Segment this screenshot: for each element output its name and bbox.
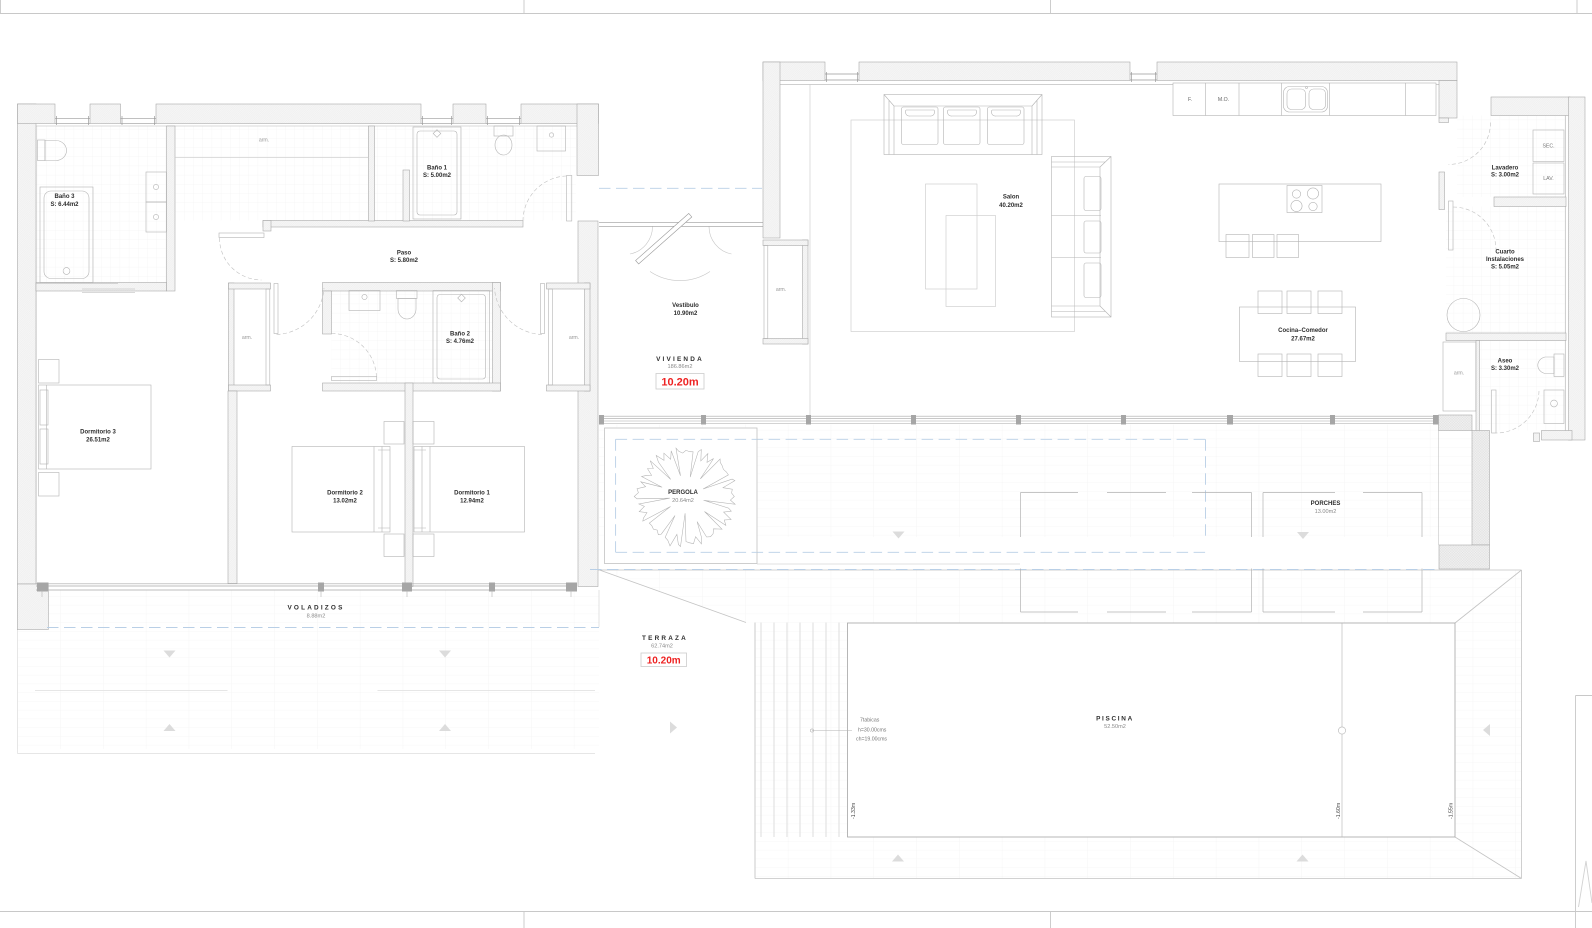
svg-text:Instalaciones: Instalaciones xyxy=(1486,257,1525,263)
svg-text:LAV.: LAV. xyxy=(1543,176,1553,182)
svg-text:S: 3.30m2: S: 3.30m2 xyxy=(1491,366,1520,372)
svg-text:52.50m2: 52.50m2 xyxy=(1104,724,1126,730)
svg-text:PERGOLA: PERGOLA xyxy=(668,490,698,496)
svg-text:Cuarto: Cuarto xyxy=(1495,250,1515,256)
svg-text:20.64m2: 20.64m2 xyxy=(672,498,694,504)
svg-text:S: 5.00m2: S: 5.00m2 xyxy=(423,173,452,179)
svg-text:M.O.: M.O. xyxy=(1218,97,1229,103)
svg-text:8.88m2: 8.88m2 xyxy=(307,614,326,620)
svg-text:62.74m2: 62.74m2 xyxy=(651,644,673,650)
svg-text:40.20m2: 40.20m2 xyxy=(999,203,1023,209)
svg-text:S: 6.44m2: S: 6.44m2 xyxy=(50,202,79,208)
svg-text:VIVIENDA: VIVIENDA xyxy=(656,356,704,363)
svg-text:S: 4.76m2: S: 4.76m2 xyxy=(446,339,475,345)
svg-text:arm.: arm. xyxy=(1454,371,1464,377)
svg-text:S: 3.00m2: S: 3.00m2 xyxy=(1491,173,1520,179)
svg-text:arm.: arm. xyxy=(776,287,786,293)
svg-text:-1.60m: -1.60m xyxy=(1336,803,1342,819)
svg-text:26.51m2: 26.51m2 xyxy=(86,438,110,444)
svg-text:SEC.: SEC. xyxy=(1542,144,1554,150)
svg-text:h=30.00cms: h=30.00cms xyxy=(858,728,887,734)
svg-text:Baño 2: Baño 2 xyxy=(450,332,471,338)
svg-text:PORCHES: PORCHES xyxy=(1311,501,1341,507)
svg-text:ch=19.00cms: ch=19.00cms xyxy=(856,737,887,743)
svg-text:VOLADIZOS: VOLADIZOS xyxy=(287,605,344,612)
svg-text:186.86m2: 186.86m2 xyxy=(668,364,693,370)
svg-text:13.00m2: 13.00m2 xyxy=(1315,509,1337,515)
svg-text:10.20m: 10.20m xyxy=(647,656,681,667)
svg-text:Salon: Salon xyxy=(1003,195,1020,201)
svg-text:Vestibulo: Vestibulo xyxy=(672,303,699,309)
svg-text:arm.: arm. xyxy=(242,335,252,341)
svg-text:7tabicas: 7tabicas xyxy=(860,718,880,724)
svg-text:27.67m2: 27.67m2 xyxy=(1291,337,1315,343)
svg-text:-1.55m: -1.55m xyxy=(1449,803,1455,819)
svg-text:Dormitorio 2: Dormitorio 2 xyxy=(327,491,363,497)
svg-text:TERRAZA: TERRAZA xyxy=(642,635,688,642)
svg-text:S: 5.80m2: S: 5.80m2 xyxy=(390,258,419,264)
svg-text:Paso: Paso xyxy=(397,251,412,257)
svg-text:Lavadero: Lavadero xyxy=(1492,166,1519,172)
svg-text:Cocina–Comedor: Cocina–Comedor xyxy=(1278,328,1328,334)
svg-text:Dormitorio 3: Dormitorio 3 xyxy=(80,430,116,436)
svg-text:Baño 3: Baño 3 xyxy=(54,194,75,200)
svg-text:Baño 1: Baño 1 xyxy=(427,166,448,172)
svg-text:12.94m2: 12.94m2 xyxy=(460,499,484,505)
svg-text:Aseo: Aseo xyxy=(1498,359,1513,365)
svg-text:10.20m: 10.20m xyxy=(661,377,699,389)
svg-text:arm.: arm. xyxy=(259,138,269,144)
svg-text:F.: F. xyxy=(1188,97,1192,103)
svg-text:-1.33m: -1.33m xyxy=(851,803,857,819)
svg-text:10.90m2: 10.90m2 xyxy=(674,311,698,317)
svg-text:S: 5.05m2: S: 5.05m2 xyxy=(1491,265,1520,271)
svg-text:arm.: arm. xyxy=(569,335,579,341)
svg-text:PISCINA: PISCINA xyxy=(1096,716,1134,723)
svg-text:Dormitorio 1: Dormitorio 1 xyxy=(454,491,490,497)
svg-text:13.02m2: 13.02m2 xyxy=(333,499,357,505)
